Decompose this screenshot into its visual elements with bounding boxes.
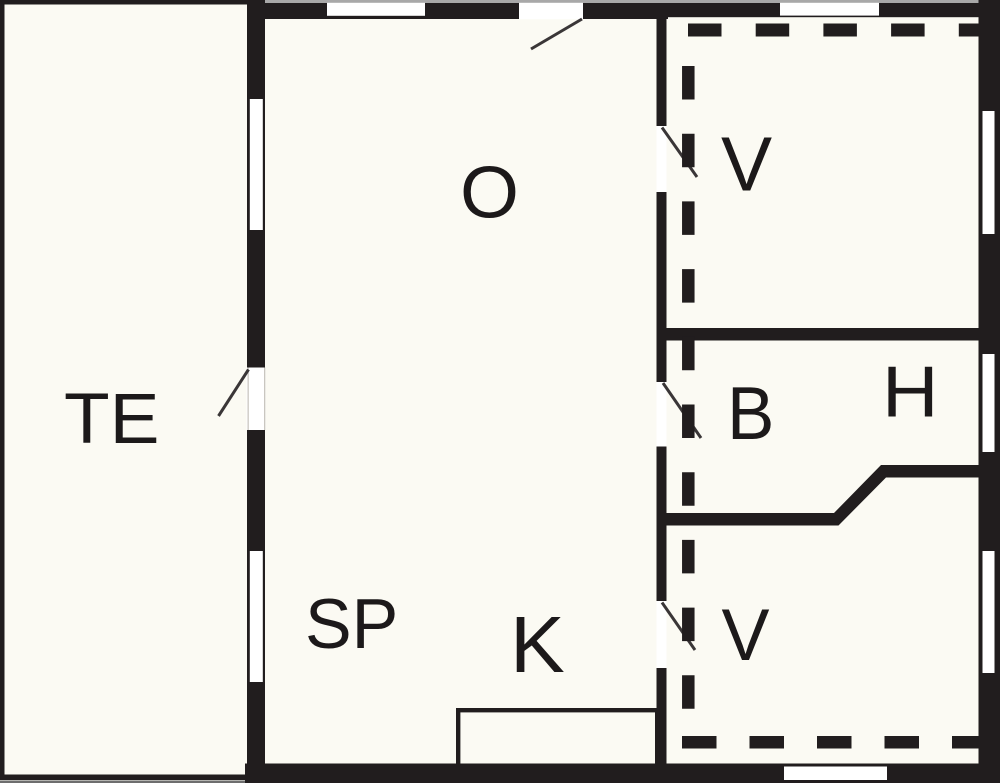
svg-text:O: O xyxy=(460,151,519,234)
svg-text:B: B xyxy=(727,371,774,455)
svg-text:K: K xyxy=(510,600,565,689)
svg-text:H: H xyxy=(882,353,939,433)
svg-text:TE: TE xyxy=(64,380,160,459)
svg-text:V: V xyxy=(722,595,770,676)
svg-text:SP: SP xyxy=(305,584,398,663)
svg-text:V: V xyxy=(721,122,772,208)
